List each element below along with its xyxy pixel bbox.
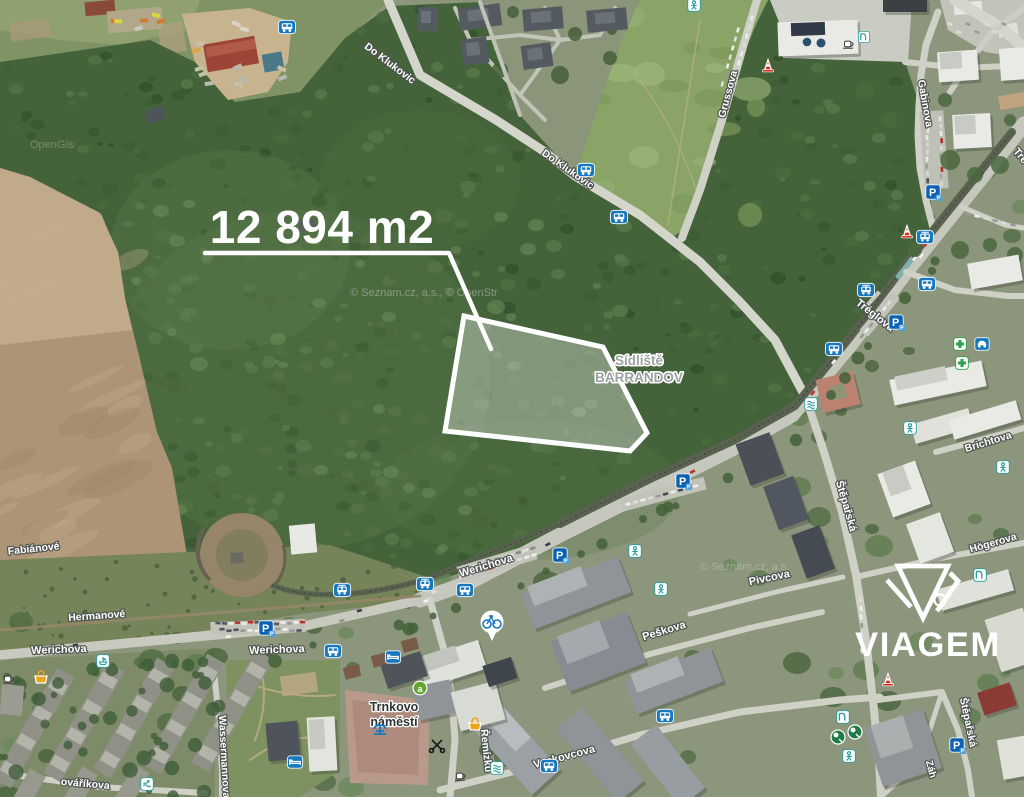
svg-text:Sídliště: Sídliště	[615, 353, 664, 368]
svg-text:Werichova: Werichova	[31, 643, 88, 657]
svg-text:P: P	[679, 476, 686, 488]
svg-text:© Seznam.cz, a.s., © OpenStr: © Seznam.cz, a.s., © OpenStr	[350, 287, 498, 299]
svg-text:OpenGis: OpenGis	[30, 139, 74, 151]
svg-text:P: P	[687, 485, 691, 491]
svg-text:Trnkovo: Trnkovo	[370, 700, 419, 714]
svg-text:P: P	[937, 196, 941, 202]
svg-text:P: P	[270, 632, 274, 638]
svg-text:P: P	[953, 740, 960, 752]
svg-text:P: P	[900, 326, 904, 332]
svg-text:P: P	[556, 550, 563, 562]
svg-text:Werichova: Werichova	[249, 643, 306, 657]
svg-text:P: P	[892, 317, 899, 329]
svg-text:VIAGEM: VIAGEM	[855, 626, 1001, 664]
svg-text:náměstí: náměstí	[370, 715, 418, 729]
svg-text:P: P	[929, 187, 936, 199]
svg-text:BARRANDOV: BARRANDOV	[595, 370, 683, 385]
svg-text:P: P	[961, 749, 965, 755]
svg-text:P: P	[564, 559, 568, 565]
svg-text:P: P	[262, 623, 269, 635]
svg-text:12 894 m2: 12 894 m2	[210, 201, 434, 253]
